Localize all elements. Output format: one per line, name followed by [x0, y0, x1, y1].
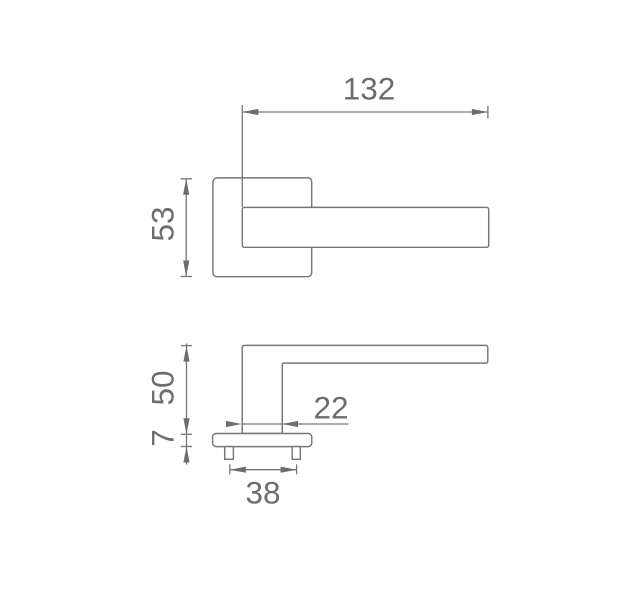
svg-text:132: 132: [343, 71, 396, 107]
svg-text:38: 38: [245, 474, 280, 510]
svg-text:50: 50: [145, 370, 181, 405]
svg-text:22: 22: [313, 389, 348, 425]
svg-text:7: 7: [144, 429, 180, 447]
svg-text:53: 53: [144, 206, 180, 241]
